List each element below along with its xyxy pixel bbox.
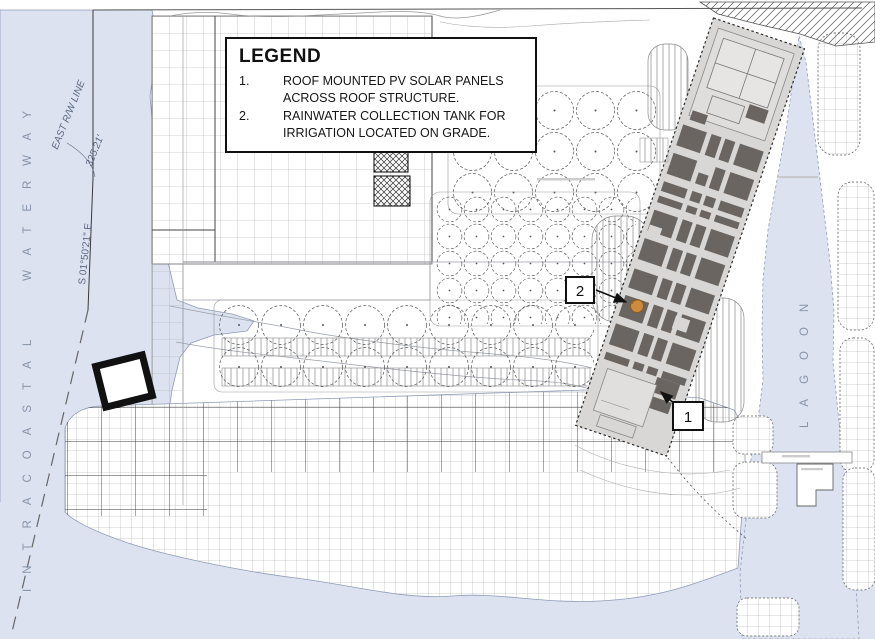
callout-2-label: 2 <box>576 283 584 300</box>
legend-item-1-number: 1. <box>239 73 283 106</box>
intracoastal-waterway-label: INTRACOASTAL WATERWAY <box>22 96 34 592</box>
crosshatch-pads <box>374 146 410 206</box>
callout-1-label: 1 <box>684 409 692 426</box>
lagoon-label: LAGOON <box>799 289 811 428</box>
legend-item-2: 2. RAINWATER COLLECTION TANK FOR IRRIGAT… <box>239 108 525 141</box>
bridge <box>762 452 852 463</box>
legend-item-2-text: RAINWATER COLLECTION TANK FOR IRRIGATION… <box>283 108 525 141</box>
rainwater-tank <box>631 300 644 313</box>
legend-item-1: 1. ROOF MOUNTED PV SOLAR PANELS ACROSS R… <box>239 73 525 106</box>
legend-title: LEGEND <box>239 46 525 68</box>
legend-item-1-text: ROOF MOUNTED PV SOLAR PANELS ACROSS ROOF… <box>283 73 525 106</box>
site-plan-page: 2 1 LEGEND 1. ROOF MOUNTED PV SOLAR PANE… <box>0 0 875 639</box>
legend-item-2-number: 2. <box>239 108 283 141</box>
legend-box: LEGEND 1. ROOF MOUNTED PV SOLAR PANELS A… <box>225 37 537 153</box>
drop-off-stalls <box>640 138 668 162</box>
highlight-square-marker <box>96 355 153 407</box>
